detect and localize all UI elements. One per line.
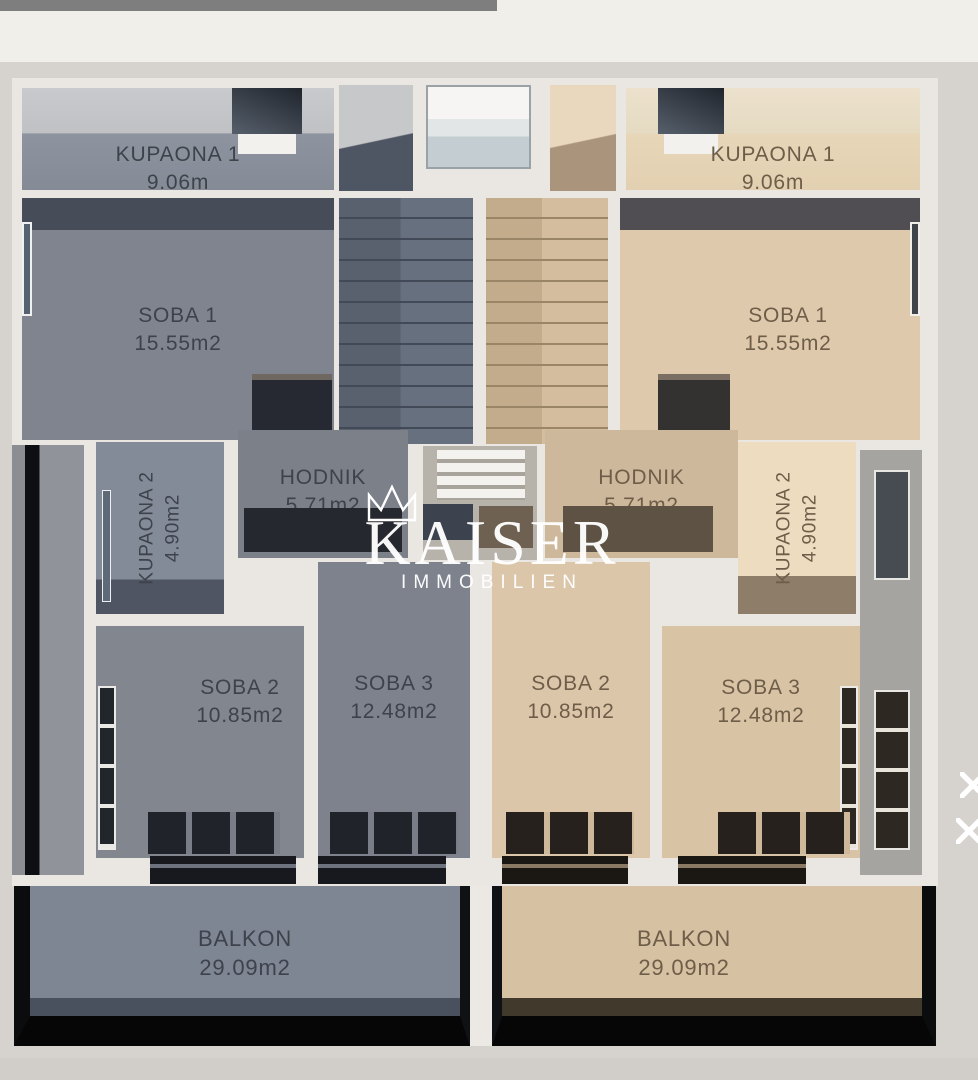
room-name-label: SOBA 2 bbox=[492, 670, 650, 698]
balcony-floor-shade bbox=[502, 998, 922, 1016]
room-name-label: SOBA 2 bbox=[176, 674, 304, 702]
balcony-opening bbox=[502, 856, 628, 884]
furniture-row bbox=[506, 812, 634, 854]
balcony-opening bbox=[318, 856, 446, 884]
room-area-label: 4.90m2 bbox=[797, 471, 823, 585]
balkon-right: BALKON 29.09m2 bbox=[492, 886, 936, 1046]
room-soba3-right: SOBA 3 12.48m2 bbox=[662, 626, 860, 858]
balcony-divider-wall bbox=[470, 886, 492, 1046]
balcony-door-icon bbox=[98, 686, 116, 850]
back-wall bbox=[620, 198, 920, 230]
room-name-label: SOBA 1 bbox=[656, 302, 920, 330]
room-area-label: 10.85m2 bbox=[492, 698, 650, 726]
skylight-window-icon bbox=[658, 88, 724, 134]
exterior-wall-left bbox=[12, 445, 84, 875]
cropped-watermark-fragment-icon bbox=[956, 818, 978, 844]
room-name-label: BALKON bbox=[502, 924, 866, 953]
balcony-floor-shade bbox=[30, 998, 460, 1016]
skylight-window-icon bbox=[232, 88, 302, 134]
cropped-watermark-fragment-icon bbox=[960, 772, 978, 798]
room-area-label: 29.09m2 bbox=[502, 953, 866, 982]
furniture-row bbox=[330, 812, 458, 854]
glass-lightwell bbox=[426, 85, 531, 169]
room-area-label: 9.06m bbox=[22, 169, 334, 190]
stairwell-shaft-right bbox=[550, 85, 616, 191]
exterior-wall-right bbox=[860, 450, 922, 875]
room-name-label: SOBA 3 bbox=[318, 670, 470, 698]
balcony-opening bbox=[678, 856, 806, 884]
room-area-label: 10.85m2 bbox=[176, 702, 304, 730]
room-name-label: KUPAONA 2 bbox=[771, 471, 797, 585]
room-area-label: 12.48m2 bbox=[318, 698, 470, 726]
room-name-label: KUPAONA 2 bbox=[134, 471, 160, 585]
room-area-label: 15.55m2 bbox=[656, 330, 920, 358]
room-kupaona2-left: KUPAONA 2 4.90m2 bbox=[96, 442, 224, 614]
furniture-row bbox=[148, 812, 280, 854]
window-icon bbox=[874, 690, 910, 850]
window-icon bbox=[102, 490, 111, 602]
room-soba1-left: SOBA 1 15.55m2 bbox=[22, 198, 334, 440]
furniture-row bbox=[718, 812, 850, 854]
room-name-label: SOBA 1 bbox=[22, 302, 334, 330]
room-soba1-right: SOBA 1 15.55m2 bbox=[620, 198, 920, 440]
room-kupaona1-left: KUPAONA 1 9.06m bbox=[22, 88, 334, 190]
staircase-right bbox=[486, 198, 608, 444]
balcony-opening bbox=[150, 856, 296, 884]
room-soba3-left: SOBA 3 12.48m2 bbox=[318, 562, 470, 858]
room-soba2-right: SOBA 2 10.85m2 bbox=[492, 562, 650, 858]
back-wall bbox=[22, 198, 334, 230]
watermark-brand: KAISER bbox=[308, 506, 676, 580]
room-name-label: HODNIK bbox=[545, 464, 738, 492]
room-area-label: 9.06m bbox=[626, 169, 920, 190]
stairwell-shaft-left bbox=[339, 85, 413, 191]
room-name-label: KUPAONA 1 bbox=[22, 141, 334, 169]
room-name-label: BALKON bbox=[30, 924, 460, 953]
room-kupaona1-right: KUPAONA 1 9.06m bbox=[626, 88, 920, 190]
room-area-label: 12.48m2 bbox=[662, 702, 860, 730]
room-area-label: 4.90m2 bbox=[160, 471, 186, 585]
balkon-left: BALKON 29.09m2 bbox=[14, 886, 470, 1046]
room-kupaona2-right: KUPAONA 2 4.90m2 bbox=[738, 442, 856, 614]
background-bottom-band bbox=[0, 1058, 978, 1080]
floorplan-render: KUPAONA 1 9.06m KUPAONA 1 9.06m SOBA 1 1… bbox=[0, 0, 978, 1080]
top-crop-bar bbox=[0, 0, 497, 11]
stair-railing bbox=[437, 450, 525, 500]
watermark-subtitle: IMMOBILIEN bbox=[320, 572, 664, 594]
room-area-label: 15.55m2 bbox=[22, 330, 334, 358]
room-soba2-left: SOBA 2 10.85m2 bbox=[96, 626, 304, 858]
room-name-label: KUPAONA 1 bbox=[626, 141, 920, 169]
room-name-label: SOBA 3 bbox=[662, 674, 860, 702]
room-area-label: 29.09m2 bbox=[30, 953, 460, 982]
window-icon bbox=[874, 470, 910, 580]
staircase-left bbox=[339, 198, 473, 444]
